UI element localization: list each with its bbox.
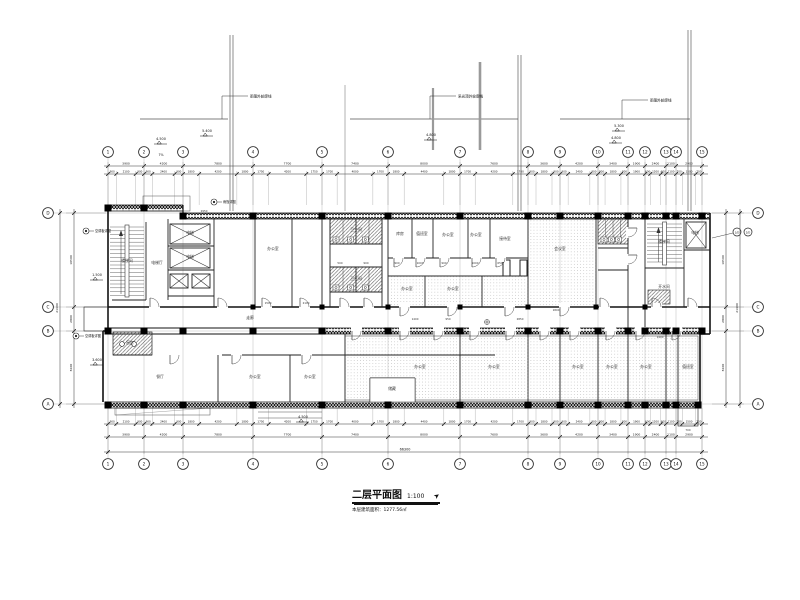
column (557, 213, 564, 220)
dimension-text: 900 (529, 420, 534, 424)
column (625, 402, 632, 409)
column (525, 328, 532, 335)
dimension-text: 4400 (421, 420, 428, 424)
dimension-text: 1900 (633, 433, 641, 437)
wc-fixture (616, 237, 622, 242)
detail-note: 雨篷详图 (223, 199, 236, 204)
column (250, 402, 257, 409)
grid-axis-label: A (757, 402, 760, 407)
dimension-text: 1700 (326, 170, 333, 174)
column (319, 213, 326, 220)
stipple-room (528, 219, 596, 307)
dimension-text: 1700 (377, 420, 384, 424)
drawing-subtitle: 本层建筑面积：1277.56㎡ (352, 507, 522, 513)
dimension-text: 4200 (575, 433, 583, 437)
dimension-text: 1750 (311, 420, 318, 424)
level-symbol (615, 128, 619, 131)
dimension-text-interior: 1400 (412, 317, 419, 321)
dimension-text: 3400 (609, 433, 617, 437)
dimension-text: 1800 (188, 170, 195, 174)
grid-axis-label: 4 (252, 150, 255, 155)
room-label: 储藏 (388, 386, 396, 391)
drawing-subtitle-label: 本层建筑面积 (352, 508, 379, 513)
grid-axis-label: 15 (699, 150, 705, 155)
column (319, 402, 326, 409)
room-label: 办公室 (447, 286, 459, 291)
dimension-text: 7600 (490, 433, 498, 437)
dimension-text: 7700 (284, 433, 292, 437)
dimension-text: 1800 (541, 170, 548, 174)
dimension-text-interior: 2100 (303, 301, 310, 305)
dimension-text: 4200 (160, 162, 168, 166)
column (663, 402, 670, 409)
column (141, 328, 148, 335)
dimension-text: 900 (176, 420, 181, 424)
column (625, 213, 632, 220)
column (385, 328, 392, 335)
exterior-wall (108, 402, 700, 408)
grid-axis-label: 11 (625, 150, 631, 155)
room-label: 办公室 (267, 246, 279, 251)
dimension-text: 8000 (420, 433, 428, 437)
grid-axis-label: 1 (107, 462, 110, 467)
dimension-text: 7400 (351, 433, 359, 437)
grid-axis-label: D (756, 211, 759, 216)
dimension-text: 1100 (668, 170, 675, 174)
dimension-text: 800 (599, 420, 604, 424)
room-label: 楼梯间 (658, 239, 670, 244)
room-label: 办公室 (572, 364, 584, 369)
grid-axis-label: 13 (663, 150, 669, 155)
wc-fixture (333, 285, 339, 290)
level-value: 3.600 (92, 358, 102, 362)
grid-axis-label: 12 (642, 150, 648, 155)
dimension-text: 8100 (721, 364, 725, 372)
dimension-text: 900 (110, 170, 115, 174)
room-label: 办公室 (414, 364, 426, 369)
slope-note: 7% (158, 153, 163, 157)
column (526, 305, 531, 310)
level-value: 5.300 (614, 124, 624, 128)
column (642, 213, 649, 220)
dimension-text-overall: 66300 (400, 448, 411, 452)
dimension-text: 900 (110, 420, 115, 424)
column (595, 213, 602, 220)
dimension-text: 900 (529, 170, 534, 174)
room-label: 办公室 (401, 286, 413, 291)
room-label: 办公室 (488, 364, 500, 369)
room-label: 值班室 (416, 231, 428, 236)
dimension-text-interior: 1000 (417, 261, 424, 265)
dimension-text: 10500 (721, 255, 725, 265)
room-label: 厨房 (126, 340, 134, 345)
dimension-text: 900 (146, 170, 151, 174)
level-symbol (612, 140, 616, 143)
room-label: 办公室 (640, 364, 652, 369)
dimension-text-interior: 950 (445, 317, 450, 321)
dimension-text: 2400 (160, 420, 167, 424)
balcony (84, 307, 108, 331)
column (251, 305, 256, 310)
dimension-text: 3600 (540, 433, 548, 437)
dimension-text: 600 (645, 420, 650, 424)
level-symbol (203, 133, 207, 136)
dimension-text: 1800 (448, 170, 455, 174)
dimension-text: 7800 (214, 162, 222, 166)
door-gap (626, 254, 630, 265)
dimension-text: 1200 (652, 420, 659, 424)
dimension-text: 4000 (352, 420, 359, 424)
dimension-text: 7800 (214, 433, 222, 437)
dimension-text: 900 (137, 170, 142, 174)
grid-axis-label: B (757, 329, 760, 334)
dimension-text: 900 (137, 420, 142, 424)
column (319, 328, 326, 335)
column (320, 305, 325, 310)
dimension-text: 1800 (242, 170, 249, 174)
column (141, 402, 148, 409)
grid-axis-label: 5 (321, 150, 324, 155)
dimension-text: 1500 (686, 170, 693, 174)
dimension-text: 1100 (667, 433, 675, 437)
column (699, 213, 706, 220)
column (457, 402, 464, 409)
dimension-text: 900 (553, 420, 558, 424)
grid-axis-label: B (47, 329, 50, 334)
room-label: 电梯 (691, 230, 699, 235)
dimension-text: 3600 (540, 162, 548, 166)
dimension-text: 3400 (609, 162, 617, 166)
wc-fixture (333, 237, 339, 242)
grid-axis-label: 1 (107, 150, 110, 155)
stove-burner (120, 342, 125, 347)
grid-axis-label: 15 (699, 462, 705, 467)
level-value: 4.800 (426, 133, 436, 137)
column (699, 328, 706, 335)
dimension-text-interior: 2850 (517, 317, 524, 321)
level-symbol (427, 137, 431, 140)
dimension-text: 1900 (633, 420, 640, 424)
column (105, 205, 112, 212)
grid-axis-label: 14 (673, 462, 679, 467)
room-label: 办公室 (442, 232, 454, 237)
level-symbol (299, 419, 303, 422)
pantry-counter (648, 290, 670, 304)
dimension-text-interior: 500 (337, 261, 342, 265)
dimension-text: 1700 (464, 420, 471, 424)
column (525, 213, 532, 220)
grid-axis-label: 3 (182, 150, 185, 155)
room-label: 楼梯间 (121, 258, 133, 263)
leader-line (712, 233, 733, 238)
dimension-text: 1800 (188, 420, 195, 424)
column (458, 305, 463, 310)
dimension-text-interior: 1400 (657, 335, 664, 339)
room-label: 库房 (396, 231, 404, 236)
detail-note: 空调板详图 (85, 333, 101, 338)
dimension-text: 2400 (652, 433, 660, 437)
column (386, 305, 391, 310)
dimension-text: 600 (645, 170, 650, 174)
dimension-text: 1200 (652, 170, 659, 174)
dimension-text: 10500 (69, 255, 73, 265)
wc-fixture (362, 285, 368, 290)
dimension-text: 900 (146, 420, 151, 424)
column (643, 305, 648, 310)
dimension-text: 1800 (393, 420, 400, 424)
dimension-text: 4200 (491, 420, 498, 424)
dimension-text: 1800 (610, 420, 617, 424)
dimension-text: 8000 (420, 162, 428, 166)
grid-axis-label: 10 (595, 462, 601, 467)
dimension-text: 4200 (160, 433, 168, 437)
duct-shaft (520, 260, 527, 276)
dimension-text: 900 (591, 420, 596, 424)
dimension-text-interior: 1800 (553, 308, 560, 312)
grid-axis-label: 2 (143, 462, 146, 467)
grid-axis-label: A (47, 402, 50, 407)
grid-axis-label: 11 (625, 462, 631, 467)
dimension-text: 7700 (284, 162, 292, 166)
room-label: 会议室 (554, 246, 566, 251)
column (625, 328, 632, 335)
dimension-text: 900 (562, 170, 567, 174)
dimension-text: 1750 (257, 420, 264, 424)
room-label: 餐厅 (156, 374, 164, 379)
dimension-text-interior: 650 (497, 261, 502, 265)
grid-axis-label: 7 (459, 150, 462, 155)
dimension-text: 1700 (326, 420, 333, 424)
dimension-text: 4200 (284, 420, 291, 424)
column (595, 328, 602, 335)
detail-note: 空调板详图 (95, 228, 111, 233)
level-value: 5.400 (202, 129, 212, 133)
wc-fixture (348, 237, 354, 242)
room-label: 电梯 (186, 230, 194, 235)
dimension-text: 4200 (575, 162, 583, 166)
detail-callout-dot (85, 230, 87, 232)
grid-axis-label: 9 (559, 150, 562, 155)
room-label: 办公室 (470, 232, 482, 237)
column (180, 402, 187, 409)
dimension-text-interior: 900 (441, 261, 446, 265)
column (525, 402, 532, 409)
grid-axis-label: 12 (642, 462, 648, 467)
dimension-text: 900 (553, 170, 558, 174)
canopy-diagonal (115, 408, 210, 415)
dimension-text-interior: 900 (394, 261, 399, 265)
level-value: 4.800 (611, 136, 621, 140)
dimension-text: 700 (677, 420, 682, 424)
column (595, 402, 602, 409)
room-label: 卫生间 (350, 227, 362, 232)
dimension-text: 800 (622, 420, 627, 424)
column (457, 328, 464, 335)
dimension-text: 2800 (721, 315, 725, 323)
column (557, 328, 564, 335)
grid-axis-label: 5 (321, 462, 324, 467)
dimension-text: 2400 (652, 162, 660, 166)
dimension-text: 1800 (610, 170, 617, 174)
dimension-text: 2100 (123, 170, 130, 174)
dimension-text: 800 (622, 170, 627, 174)
room-label: 走廊 (246, 315, 254, 320)
drawing-area-value: 1277.56㎡ (384, 508, 407, 513)
dimension-text: 1500 (686, 420, 693, 424)
leader-note: 雨篷外轮廓线 (650, 97, 672, 102)
dimension-text: 1700 (517, 420, 524, 424)
leader-note: 采光顶外轮廓线 (458, 93, 484, 98)
grid-axis-label: 14 (673, 150, 679, 155)
dimension-text: 1900 (633, 170, 640, 174)
detail-callout-dot (75, 335, 77, 337)
dimension-text: 700 (696, 170, 701, 174)
column (673, 213, 680, 220)
column (642, 402, 649, 409)
dimension-text-interior: 900 (363, 261, 368, 265)
level-value: 1.500 (92, 273, 102, 277)
dimension-text: 2400 (576, 420, 583, 424)
detail-callout-dot (213, 201, 215, 203)
dimension-text: 1750 (311, 170, 318, 174)
column (180, 213, 187, 220)
dimension-text: 2900 (685, 162, 693, 166)
column (250, 213, 257, 220)
wc-fixture (601, 237, 607, 242)
grid-axis-label: 9 (559, 462, 562, 467)
dimension-text: 1800 (242, 420, 249, 424)
column (642, 328, 649, 335)
dimension-text: 7600 (490, 162, 498, 166)
dimension-text: 1100 (668, 420, 675, 424)
wc-fixture (348, 285, 354, 290)
dimension-text: 1900 (633, 162, 641, 166)
grid-axis-label: 13 (663, 462, 669, 467)
drawing-title: 二层平面图 (352, 490, 402, 501)
level-value: 4.500 (298, 415, 308, 419)
grid-axis-label: 2/D (746, 230, 751, 234)
dimension-text: 600 (661, 420, 666, 424)
column (250, 328, 257, 335)
column (105, 328, 112, 335)
level-symbol (157, 141, 161, 144)
dimension-text: 1800 (448, 420, 455, 424)
column (695, 402, 702, 409)
column (141, 205, 148, 212)
column (673, 402, 680, 409)
grid-axis-label: 4 (252, 462, 255, 467)
room-label: 卫生间 (350, 276, 362, 281)
dimension-text: 900 (176, 170, 181, 174)
dimension-text: 4200 (215, 420, 222, 424)
door-gap (626, 227, 630, 238)
room-label: 办公室 (304, 374, 316, 379)
dimension-text: 4400 (421, 170, 428, 174)
column (663, 213, 670, 220)
dimension-text: 600 (661, 170, 666, 174)
dimension-text-interior: 700 (685, 428, 690, 432)
grid-axis-label: 6 (387, 462, 390, 467)
grid-axis-label: 7 (459, 462, 462, 467)
column (385, 213, 392, 220)
grid-axis-label: 3 (182, 462, 185, 467)
dimension-text: 4000 (352, 170, 359, 174)
dimension-text: 2800 (69, 315, 73, 323)
dimension-text: 2900 (685, 433, 693, 437)
grid-axis-label: C (757, 305, 760, 310)
dimension-text: 700 (696, 420, 701, 424)
room-label: 电梯 (186, 254, 194, 259)
dimension-text-interior: 1500 (265, 301, 272, 305)
level-symbol (93, 277, 97, 280)
room-label: 办公室 (606, 364, 618, 369)
level-symbol (93, 362, 97, 365)
grid-axis-label: 1/D (735, 230, 740, 234)
dimension-text-total: 21400 (735, 303, 739, 313)
dimension-text: 900 (591, 170, 596, 174)
dimension-text: 3900 (122, 433, 130, 437)
grid-axis-label: C (47, 305, 50, 310)
grid-axis-label: 6 (387, 150, 390, 155)
dimension-text: 700 (677, 170, 682, 174)
drawing-title-row: 二层平面图1:100➤ (352, 486, 440, 504)
room-label: 开水间 (658, 284, 670, 289)
dimension-text: 2400 (160, 170, 167, 174)
dimension-text-total: 21400 (55, 303, 59, 313)
column (105, 402, 112, 409)
room-label: 办公室 (249, 374, 261, 379)
dimension-text: 1700 (377, 170, 384, 174)
dimension-text: 4200 (491, 170, 498, 174)
grid-axis-label: 8 (527, 150, 530, 155)
column (385, 402, 392, 409)
leader-note: 雨篷外轮廓线 (250, 93, 272, 98)
room-label: 值班室 (682, 364, 694, 369)
column (663, 328, 670, 335)
north-arrow-icon: ➤ (433, 491, 442, 501)
dimension-text: 4200 (215, 170, 222, 174)
column (180, 328, 187, 335)
dimension-text: 800 (599, 170, 604, 174)
column (457, 213, 464, 220)
dimension-text: 900 (562, 420, 567, 424)
dimension-text: 1800 (393, 170, 400, 174)
grid-axis-label: D (46, 211, 49, 216)
room-label: 接待室 (499, 236, 511, 241)
dimension-text-interior: 2950 (201, 209, 208, 213)
dimension-text: 8100 (69, 364, 73, 372)
column (673, 328, 680, 335)
dimension-text: 1700 (464, 170, 471, 174)
drawing-scale: 1:100 (407, 493, 424, 500)
level-value: 4.500 (156, 137, 166, 141)
room-label: 电梯厅 (151, 260, 163, 265)
dimension-text: 1100 (667, 162, 675, 166)
title-block: 二层平面图1:100➤ 本层建筑面积：1277.56㎡ (352, 483, 522, 513)
grid-axis-label: 2 (143, 150, 146, 155)
wc-fixture (362, 237, 368, 242)
dimension-text: 7400 (351, 162, 359, 166)
column (557, 402, 564, 409)
dimension-text: 3900 (122, 162, 130, 166)
grid-axis-label: 8 (527, 462, 530, 467)
dimension-text: 2100 (123, 420, 130, 424)
wc-fixture (608, 237, 614, 242)
grid-axis-label: 10 (595, 150, 601, 155)
stipple-room (388, 276, 528, 307)
drawing-canvas: 1122334455667788991010111112121313141415… (0, 0, 800, 600)
column (594, 305, 599, 310)
